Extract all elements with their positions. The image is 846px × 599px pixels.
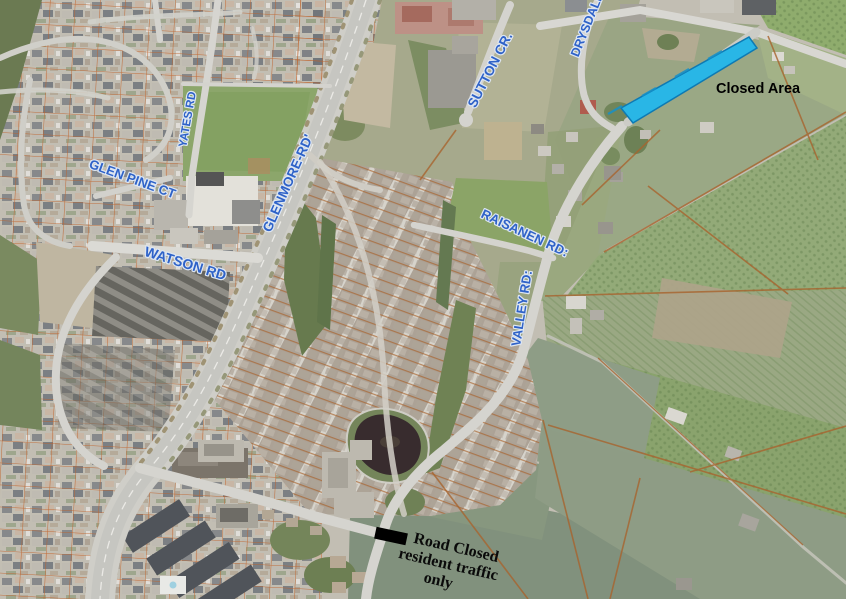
svg-text:Closed Area: Closed Area <box>716 81 801 97</box>
